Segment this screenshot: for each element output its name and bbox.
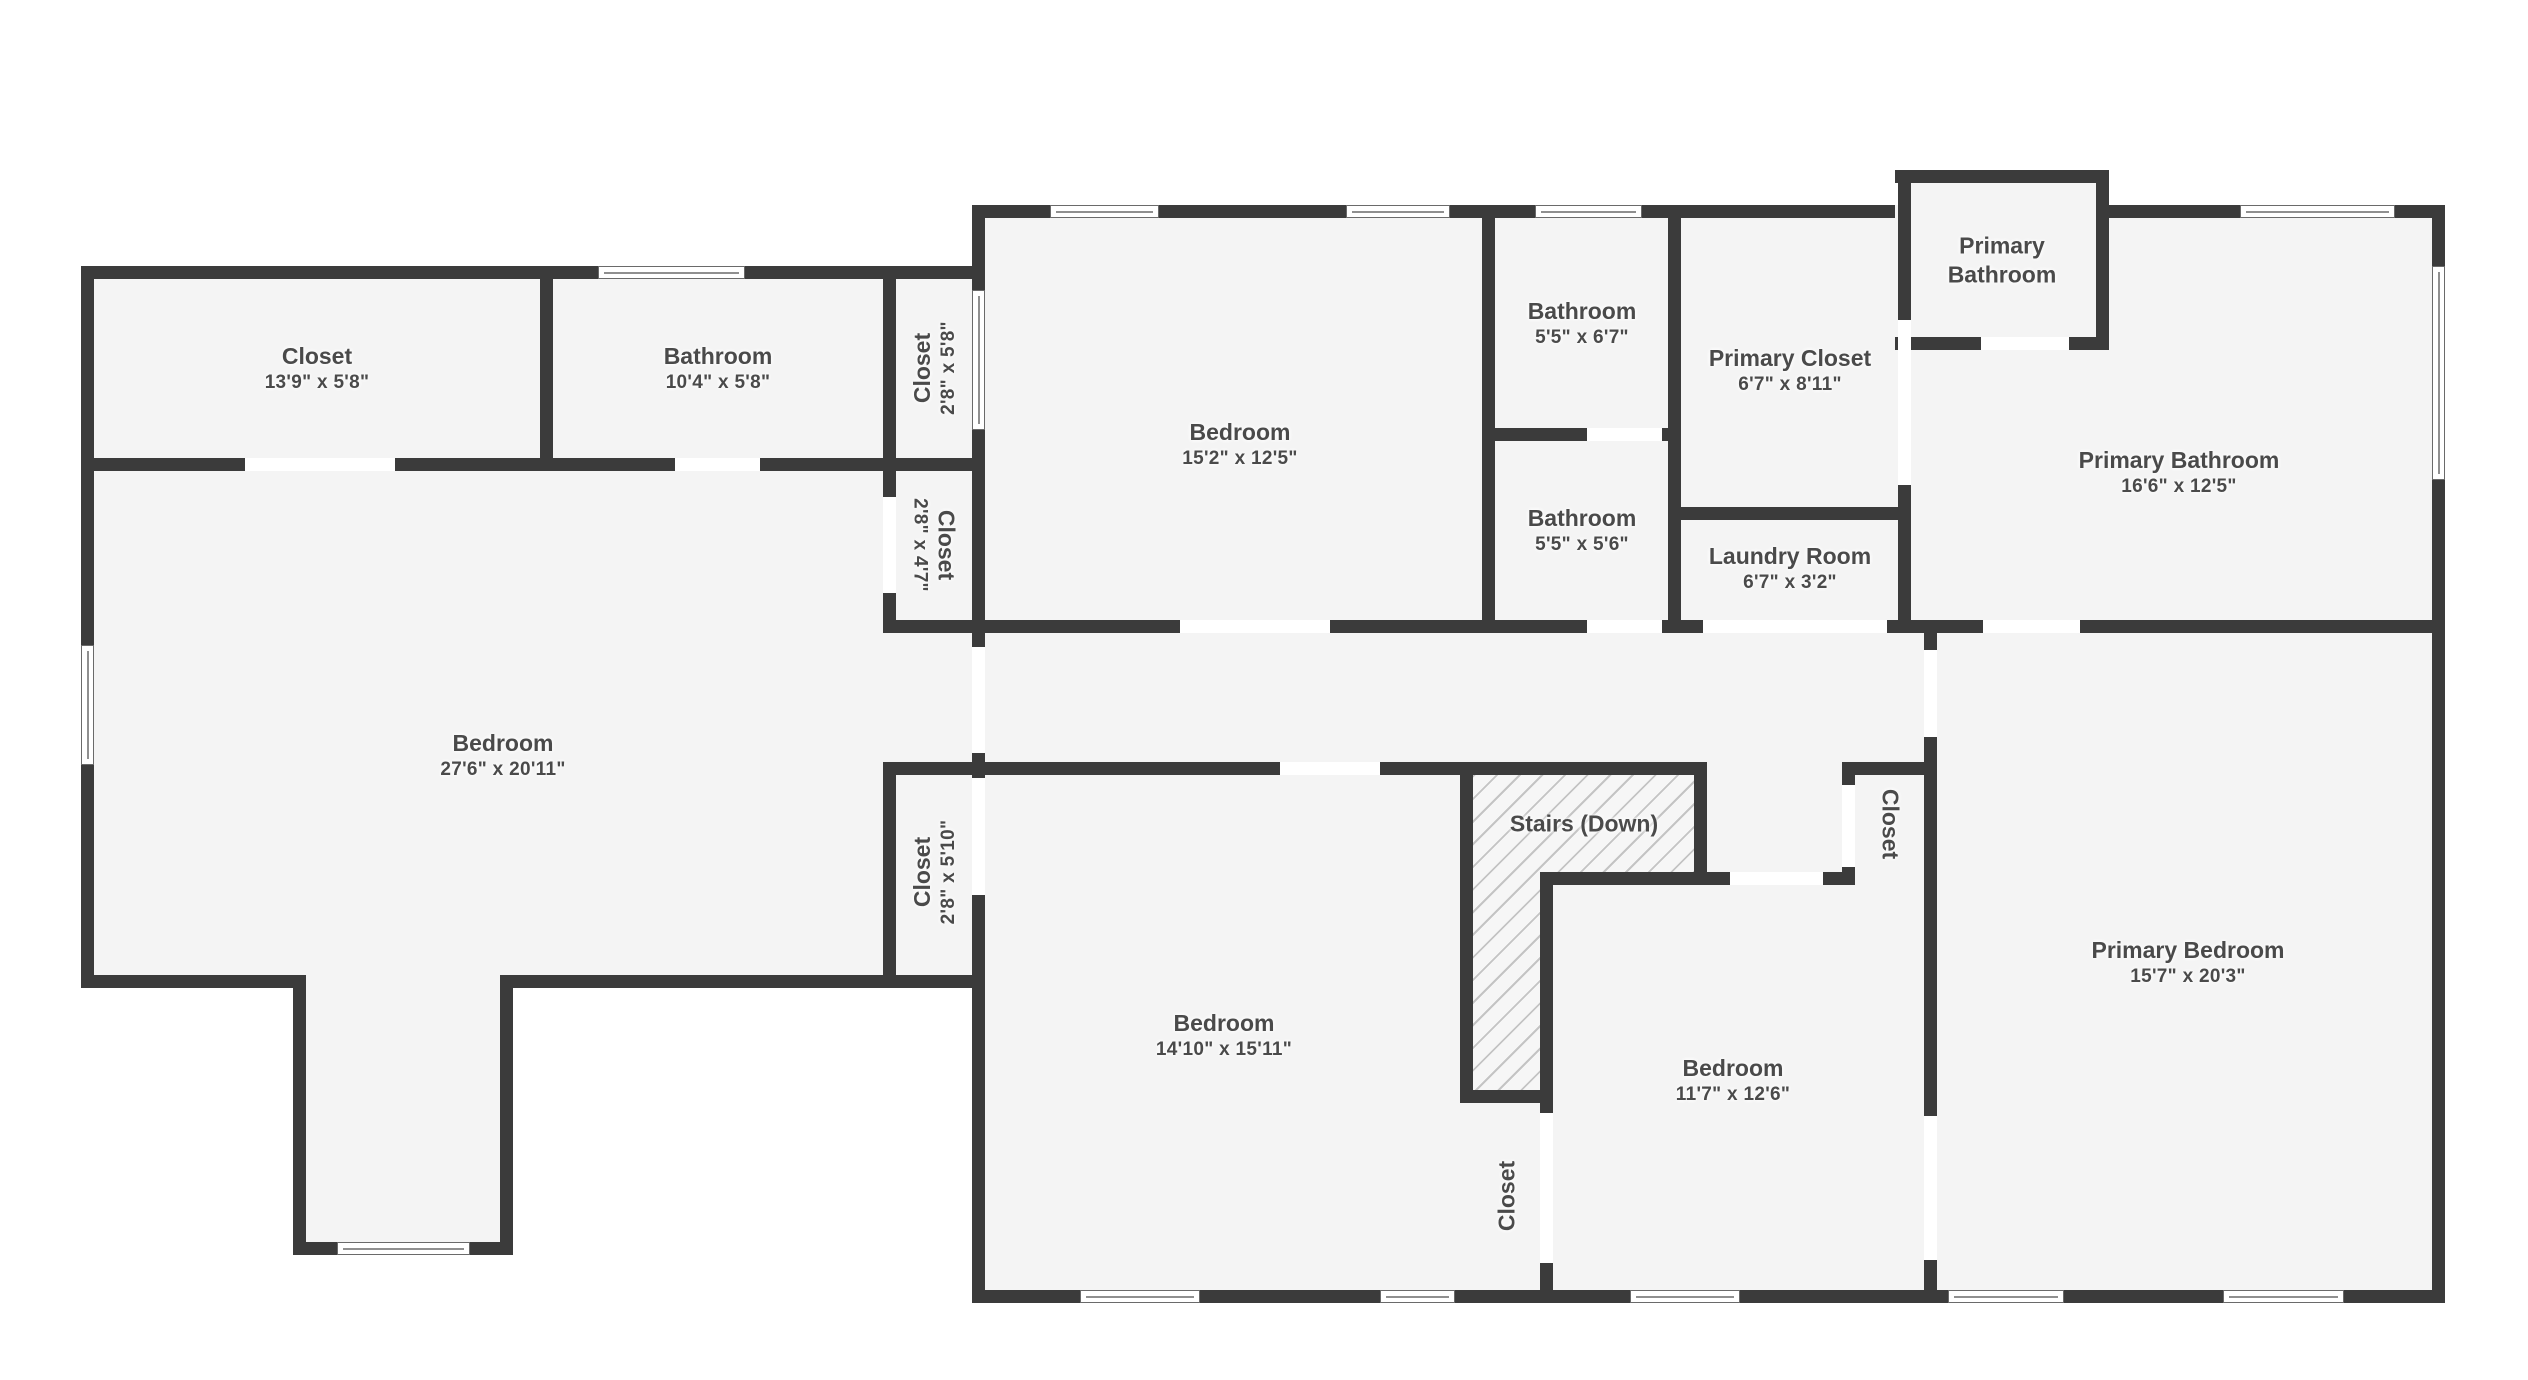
room-name: Bathroom xyxy=(1528,504,1637,533)
door-opening xyxy=(1540,1113,1553,1263)
window xyxy=(81,645,94,765)
room-dimensions: 15'2" x 12'5" xyxy=(1182,447,1297,471)
door-opening xyxy=(1587,620,1662,633)
room-label-primary-bathroom: Primary Bathroom16'6" x 12'5" xyxy=(2079,446,2280,499)
wall xyxy=(1460,1090,1553,1103)
room-name: Closet xyxy=(265,342,370,371)
room-label-closet: Closet2'8" x 4'7" xyxy=(908,498,961,592)
wall xyxy=(500,975,985,988)
room-name: Primary Closet xyxy=(1709,344,1871,373)
room-label-laundry-room: Laundry Room6'7" x 3'2" xyxy=(1709,542,1871,595)
room-label-closet: Closet2'8" x 5'10" xyxy=(908,820,961,925)
door-opening xyxy=(1924,1116,1937,1260)
room-label-closet: Closet13'9" x 5'8" xyxy=(265,342,370,395)
room-name: Bedroom xyxy=(1676,1054,1790,1083)
wall xyxy=(81,266,94,988)
window-pane xyxy=(1056,211,1153,213)
wall xyxy=(1694,775,1707,885)
wall xyxy=(1895,170,2109,183)
door-opening xyxy=(1924,650,1937,737)
wall xyxy=(1482,218,1495,633)
room-dimensions: 16'6" x 12'5" xyxy=(2079,475,2280,499)
floorplan-canvas: Closet13'9" x 5'8"Bathroom10'4" x 5'8"Cl… xyxy=(0,0,2528,1380)
room-name: Closet xyxy=(908,820,937,925)
wall xyxy=(883,620,985,633)
window xyxy=(1948,1290,2064,1303)
door-opening xyxy=(883,497,896,593)
wall xyxy=(1668,507,1911,520)
door-opening xyxy=(1730,872,1823,885)
wall xyxy=(81,975,306,988)
window-pane xyxy=(978,296,980,424)
room-dimensions: 6'7" x 3'2" xyxy=(1709,571,1871,595)
room-dimensions: 2'8" x 4'7" xyxy=(908,498,932,592)
window-pane xyxy=(1086,1296,1194,1298)
wall xyxy=(883,762,896,988)
wall xyxy=(1668,218,1681,633)
wall xyxy=(81,266,985,279)
door-opening xyxy=(1981,337,2069,350)
window-pane xyxy=(2438,272,2440,474)
window xyxy=(337,1242,470,1255)
room-label-bathroom: Bathroom5'5" x 6'7" xyxy=(1528,297,1637,350)
window-pane xyxy=(343,1248,464,1250)
window xyxy=(1630,1290,1740,1303)
window-pane xyxy=(2229,1296,2338,1298)
wall xyxy=(1842,762,1937,775)
window-pane xyxy=(1352,211,1444,213)
room-name: Closet xyxy=(908,321,937,415)
window xyxy=(598,266,745,279)
door-opening xyxy=(972,647,985,753)
door-opening xyxy=(1983,620,2080,633)
window xyxy=(1535,205,1642,218)
window xyxy=(1346,205,1450,218)
door-opening xyxy=(972,778,985,895)
window-pane xyxy=(1541,211,1636,213)
room-dimensions: 6'7" x 8'11" xyxy=(1709,373,1871,397)
room-label-stairs-down-: Stairs (Down) xyxy=(1510,810,1658,839)
room-name: Closet xyxy=(1876,789,1905,859)
wall xyxy=(2096,170,2109,350)
window-pane xyxy=(604,272,739,274)
window-pane xyxy=(87,651,89,759)
door-opening xyxy=(1180,620,1330,633)
window xyxy=(2223,1290,2344,1303)
room-name: Primary Bathroom xyxy=(2079,446,2280,475)
room-dimensions: 5'5" x 6'7" xyxy=(1528,326,1637,350)
room-label-bedroom: Bedroom11'7" x 12'6" xyxy=(1676,1054,1790,1107)
room-name: Laundry Room xyxy=(1709,542,1871,571)
room-label-bathroom: Bathroom5'5" x 5'6" xyxy=(1528,504,1637,557)
window xyxy=(2432,266,2445,480)
window-pane xyxy=(2246,211,2389,213)
room-dimensions: 15'7" x 20'3" xyxy=(2091,965,2284,989)
window xyxy=(2240,205,2395,218)
room-name: Bathroom xyxy=(664,342,773,371)
room-label-bedroom: Bedroom14'10" x 15'11" xyxy=(1156,1009,1292,1062)
door-opening xyxy=(1280,762,1380,775)
room-name: Primary Bedroom xyxy=(2091,936,2284,965)
wall xyxy=(81,458,985,471)
wall xyxy=(883,762,985,775)
room-label-closet: Closet2'8" x 5'8" xyxy=(908,321,961,415)
room-name: Closet xyxy=(1493,1161,1522,1231)
wall xyxy=(883,266,896,471)
door-opening xyxy=(1898,320,1911,485)
door-opening xyxy=(1703,620,1887,633)
wall xyxy=(540,279,553,458)
wall xyxy=(1460,775,1473,1103)
room-dimensions: 11'7" x 12'6" xyxy=(1676,1083,1790,1107)
room-label-bathroom: Bathroom10'4" x 5'8" xyxy=(664,342,773,395)
room-name: Bedroom xyxy=(1182,418,1297,447)
floor-area xyxy=(293,975,513,1255)
room-label-closet: Closet xyxy=(1493,1161,1522,1231)
room-dimensions: 10'4" x 5'8" xyxy=(664,371,773,395)
door-opening xyxy=(675,458,760,471)
room-dimensions: 2'8" x 5'10" xyxy=(937,820,961,925)
window xyxy=(1380,1290,1455,1303)
window-pane xyxy=(1386,1296,1449,1298)
room-name: Closet xyxy=(932,498,961,592)
floor-area xyxy=(81,266,985,988)
wall xyxy=(500,975,513,1255)
room-label-primary-closet: Primary Closet6'7" x 8'11" xyxy=(1709,344,1871,397)
room-name: Bedroom xyxy=(440,729,565,758)
room-dimensions: 14'10" x 15'11" xyxy=(1156,1038,1292,1062)
room-label-bedroom: Bedroom27'6" x 20'11" xyxy=(440,729,565,782)
room-label-bedroom: Bedroom15'2" x 12'5" xyxy=(1182,418,1297,471)
door-opening xyxy=(1842,785,1855,867)
window xyxy=(1080,1290,1200,1303)
room-label-primary-bathroom: Primary Bathroom xyxy=(1948,231,2057,289)
wall xyxy=(293,975,306,1255)
room-label-closet: Closet xyxy=(1876,789,1905,859)
room-dimensions: 27'6" x 20'11" xyxy=(440,758,565,782)
room-dimensions: 5'5" x 5'6" xyxy=(1528,533,1637,557)
window-pane xyxy=(1636,1296,1734,1298)
room-name: Bedroom xyxy=(1156,1009,1292,1038)
door-opening xyxy=(1587,428,1662,441)
door-opening xyxy=(245,458,395,471)
room-name: Bathroom xyxy=(1528,297,1637,326)
room-label-primary-bedroom: Primary Bedroom15'7" x 20'3" xyxy=(2091,936,2284,989)
room-name: Primary Bathroom xyxy=(1948,231,2057,289)
room-dimensions: 2'8" x 5'8" xyxy=(937,321,961,415)
window xyxy=(972,290,985,430)
room-name: Stairs (Down) xyxy=(1510,810,1658,839)
window xyxy=(1050,205,1159,218)
window-pane xyxy=(1954,1296,2058,1298)
room-dimensions: 13'9" x 5'8" xyxy=(265,371,370,395)
